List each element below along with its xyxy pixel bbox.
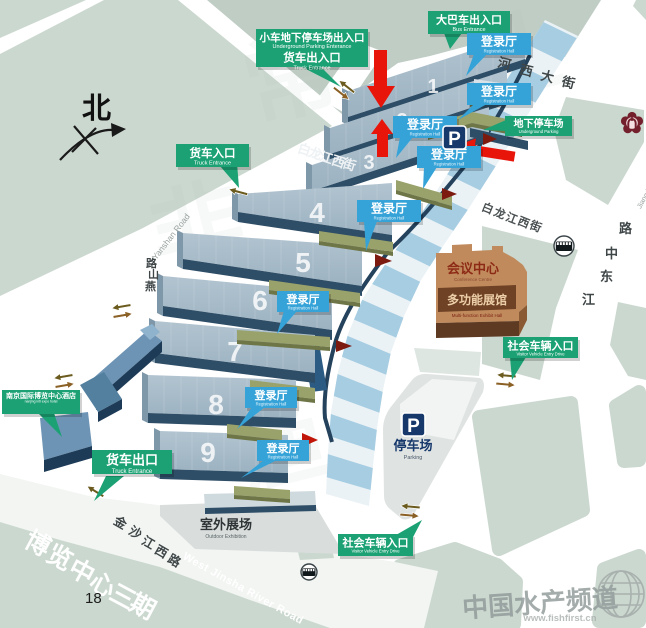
svg-text:东: 东 <box>600 269 613 284</box>
svg-text:Underground Parking Enterance: Underground Parking Enterance <box>273 44 352 50</box>
svg-text:Bus Entrance: Bus Entrance <box>452 27 485 33</box>
svg-text:燕: 燕 <box>145 279 156 293</box>
svg-text:Multi-function Exhibit Hall: Multi-function Exhibit Hall <box>452 313 503 318</box>
svg-text:nanjing intl expo hotel: nanjing intl expo hotel <box>25 400 58 404</box>
svg-text:Registration Hall: Registration Hall <box>434 162 465 167</box>
svg-text:货车出入口: 货车出入口 <box>282 51 341 65</box>
svg-text:Outdoor Exhibition: Outdoor Exhibition <box>205 534 246 540</box>
svg-text:18: 18 <box>85 590 102 607</box>
svg-text:Truck Entrance: Truck Entrance <box>194 160 231 166</box>
svg-text:室外展场: 室外展场 <box>200 517 252 532</box>
svg-text:小车地下停车场出入口: 小车地下停车场出入口 <box>259 31 365 44</box>
svg-text:Visitor Vehicle Entry Drive: Visitor Vehicle Entry Drive <box>351 548 400 553</box>
svg-text:Registration Hall: Registration Hall <box>484 49 515 54</box>
svg-text:社会车辆入口: 社会车辆入口 <box>507 338 574 352</box>
svg-text:5: 5 <box>295 247 311 278</box>
svg-text:路: 路 <box>619 221 633 236</box>
svg-text:P: P <box>407 416 420 437</box>
svg-text:6: 6 <box>252 285 268 316</box>
svg-text:多功能展馆: 多功能展馆 <box>447 292 507 307</box>
svg-text:3: 3 <box>363 152 374 174</box>
svg-text:Visitor Vehicle Entry Drive: Visitor Vehicle Entry Drive <box>516 351 565 356</box>
svg-text:社会车辆入口: 社会车辆入口 <box>342 535 409 549</box>
svg-text:P: P <box>448 129 461 150</box>
svg-text:Truck Entrance: Truck Entrance <box>112 469 153 475</box>
svg-text:会议中心: 会议中心 <box>447 261 499 276</box>
svg-text:北: 北 <box>82 92 111 125</box>
svg-text:南京国际博览中心酒店: 南京国际博览中心酒店 <box>6 391 76 400</box>
svg-text:Registration Hall: Registration Hall <box>256 402 287 407</box>
svg-text:货车出口: 货车出口 <box>106 453 158 468</box>
svg-text:Registration Hall: Registration Hall <box>410 132 441 137</box>
svg-text:Truck Entrance: Truck Entrance <box>293 65 330 71</box>
svg-text:4: 4 <box>309 197 325 228</box>
svg-text:Conference Centre: Conference Centre <box>454 277 493 282</box>
svg-text:停车场: 停车场 <box>393 438 432 453</box>
svg-text:Registration Hall: Registration Hall <box>484 99 515 104</box>
svg-text:中: 中 <box>605 246 618 261</box>
svg-text:山: 山 <box>148 267 159 281</box>
svg-text:大巴车出入口: 大巴车出入口 <box>436 12 502 26</box>
svg-text:Underground Parking: Underground Parking <box>519 129 559 134</box>
svg-text:登录厅: 登录厅 <box>480 84 517 99</box>
svg-text:Registration Hall: Registration Hall <box>268 455 299 460</box>
svg-text:江: 江 <box>582 292 595 307</box>
svg-text:登录厅: 登录厅 <box>370 201 407 216</box>
svg-text:Parking: Parking <box>404 455 423 461</box>
svg-text:9: 9 <box>200 437 216 468</box>
svg-text:Registration Hall: Registration Hall <box>288 306 319 311</box>
svg-text:货车入口: 货车入口 <box>189 146 236 160</box>
svg-text:登录厅: 登录厅 <box>266 441 300 455</box>
svg-text:登录厅: 登录厅 <box>286 292 320 306</box>
svg-text:8: 8 <box>208 389 224 420</box>
svg-text:登录厅: 登录厅 <box>406 117 443 132</box>
svg-text:www.fishfirst.cn: www.fishfirst.cn <box>522 613 596 624</box>
svg-text:Registration Hall: Registration Hall <box>374 216 405 221</box>
svg-text:登录厅: 登录厅 <box>480 34 517 49</box>
svg-text:登录厅: 登录厅 <box>254 388 288 402</box>
